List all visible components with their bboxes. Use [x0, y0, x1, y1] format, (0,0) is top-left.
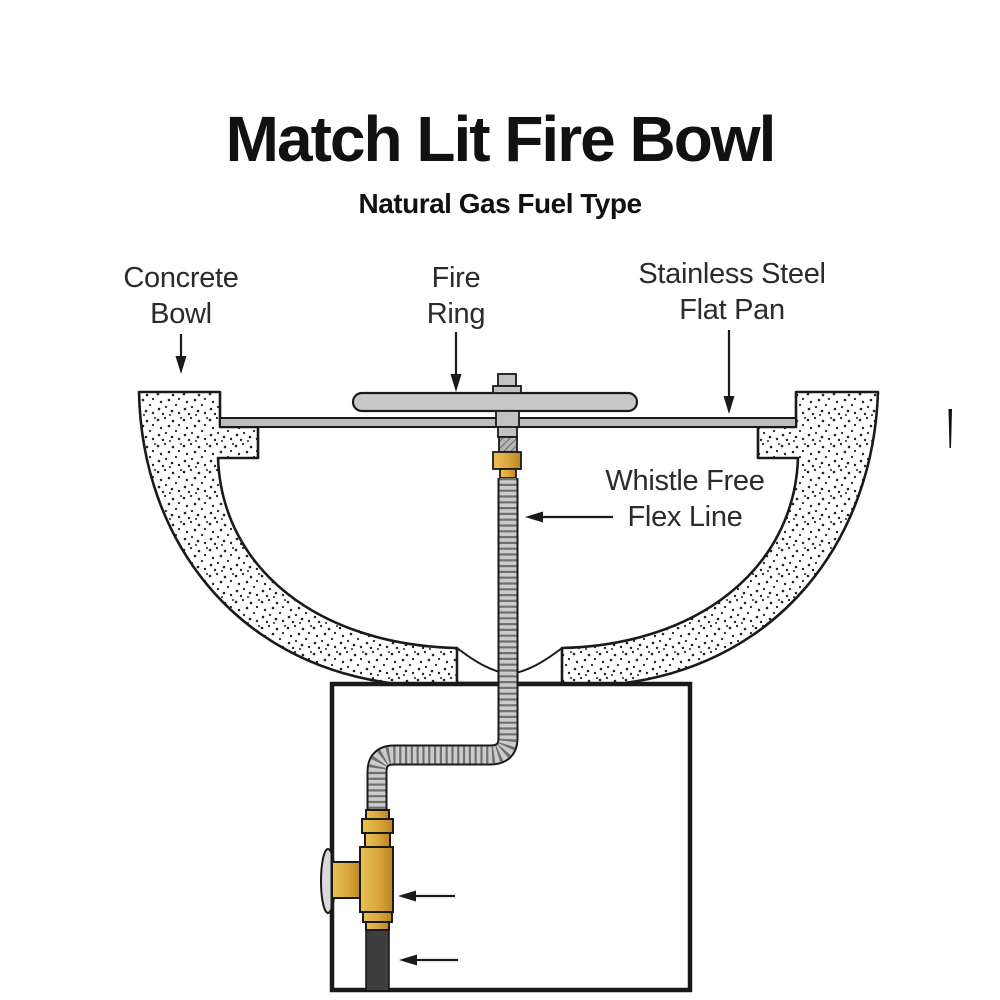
gas-line-pipe: [366, 930, 389, 991]
concrete-bowl-arrow: [176, 334, 187, 374]
fire-ring: [353, 393, 637, 411]
fire-bowl-diagram-page: Match Lit Fire Bowl Natural Gas Fuel Typ…: [0, 0, 1000, 1000]
valve-body: [360, 847, 393, 912]
hub-top-washer: [493, 386, 521, 393]
stray-mark: [949, 409, 953, 448]
valve-upper-collar: [365, 833, 390, 847]
flat-pan-arrow: [724, 330, 735, 414]
hub-ring-nut: [496, 411, 519, 427]
fire-bowl-cross-section-drawing: [0, 0, 1000, 1000]
valve-lower-hex-nut: [363, 912, 392, 922]
hub-pan-collar: [498, 427, 517, 437]
valve-side-arm: [332, 862, 362, 898]
hub-top-bolt: [498, 374, 516, 386]
flex-line-arrow: [525, 512, 613, 523]
bowl-base-right-arc-line: [511, 648, 562, 674]
hub-brass-adapter: [500, 469, 516, 478]
fire-ring-arrow: [451, 332, 462, 392]
valve-upper-hex-nut: [362, 819, 393, 833]
hub-brass-hex-nut: [493, 452, 521, 469]
valve-upper-nipple: [366, 810, 389, 819]
burner-hub-fittings: [493, 374, 521, 478]
hub-threaded-nipple: [499, 437, 517, 452]
valve-lower-nipple: [366, 922, 389, 930]
